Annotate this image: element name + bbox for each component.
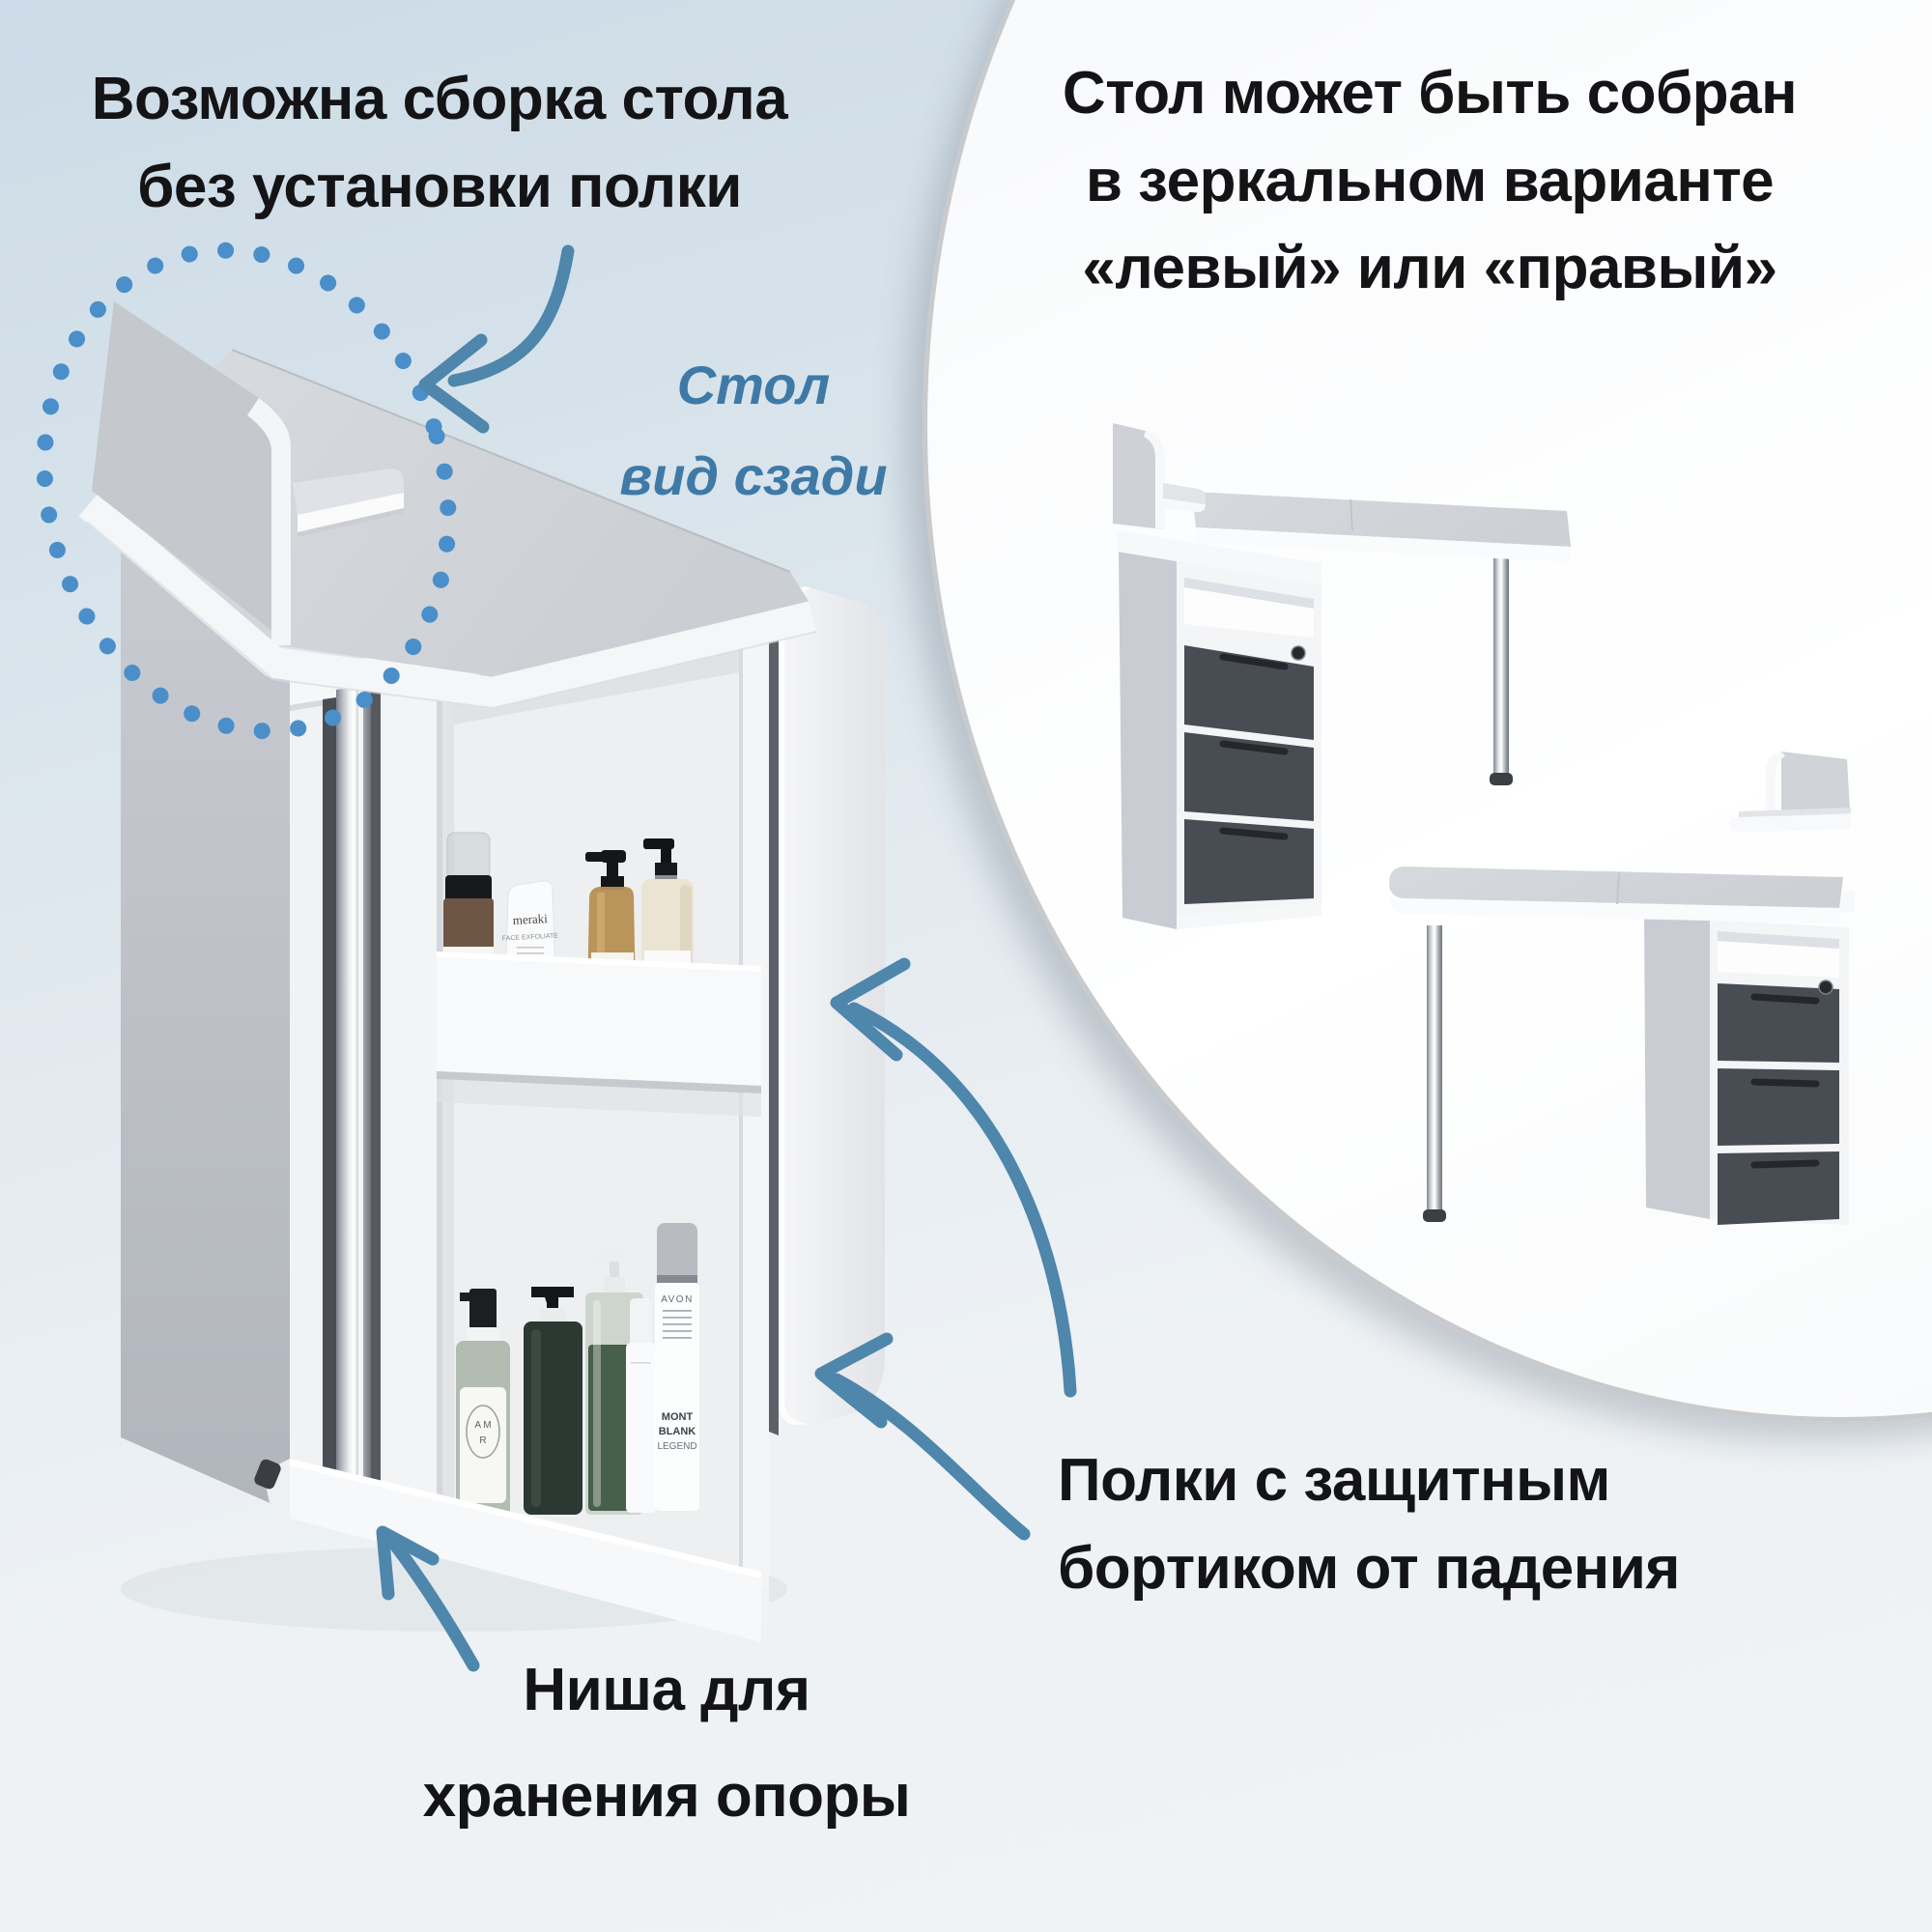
drawer-lock [1292,646,1305,660]
note-line: Ниша для [372,1637,961,1744]
pedestal-side [1119,552,1177,929]
riser-shelf [1729,808,1851,833]
table-leg [1490,541,1513,785]
assembly-note: Возможна сборка стола без установки полк… [87,56,792,231]
note-line: хранения опоры [372,1744,961,1850]
mirror-note: Стол может быть собран в зеркальном вари… [1019,50,1840,313]
desk-variant-left [1113,423,1571,929]
caption-line: Стол [560,340,947,431]
drawer-handle [1754,1082,1816,1084]
pedestal-side [1644,912,1710,1219]
label-line: BLANK [659,1426,696,1437]
note-line: «левый» или «правый» [1019,225,1840,313]
rear-view-caption: Стол вид сзади [560,340,947,522]
label-line: A M [474,1420,491,1431]
note-line: Стол может быть собран [1019,50,1840,138]
drawer-lock [1819,980,1833,994]
riser-backrest [1113,423,1165,529]
pedestal-front [1177,561,1321,929]
drawer-handle [1754,1163,1816,1165]
shelves-note: Полки с защитным бортиком от падения [1058,1437,1869,1612]
curved-arrow-to-backrest [425,251,568,427]
tabletop [1389,867,1843,923]
note-line: бортиком от падения [1058,1525,1869,1613]
note-line: Возможна сборка стола [87,56,792,144]
chrome-support-pole [336,684,371,1522]
riser-shelf [1163,483,1206,512]
note-line: в зеркальном варианте [1019,138,1840,226]
caption-line: вид сзади [560,431,947,522]
niche-note: Ниша для хранения опоры [372,1637,961,1851]
label-line: LEGEND [657,1441,696,1452]
product-infographic-canvas: meraki meraki FACE EXFOLIATE [0,0,1932,1932]
brand-label: meraki [512,911,548,927]
leaf-gap-shadow [769,593,779,1435]
upper-shelf-rail [437,952,761,1117]
drawer-handle [1754,997,1816,1001]
left-side-panel [121,537,290,1512]
note-line: Полки с защитным [1058,1437,1869,1525]
note-line: без установки полки [87,144,792,232]
brand-label: AVON [661,1294,694,1305]
pedestal-front [1710,920,1849,1225]
support-pole-niche [323,682,381,1522]
label-line: R [479,1435,486,1446]
niche-divider [381,672,442,1515]
table-leg [1423,925,1446,1222]
desk-variant-right [1389,752,1855,1225]
cosmetics-deodorant-can: AVON MONT BLANK LEGEND [655,1223,699,1511]
label-line: MONT [662,1411,694,1423]
